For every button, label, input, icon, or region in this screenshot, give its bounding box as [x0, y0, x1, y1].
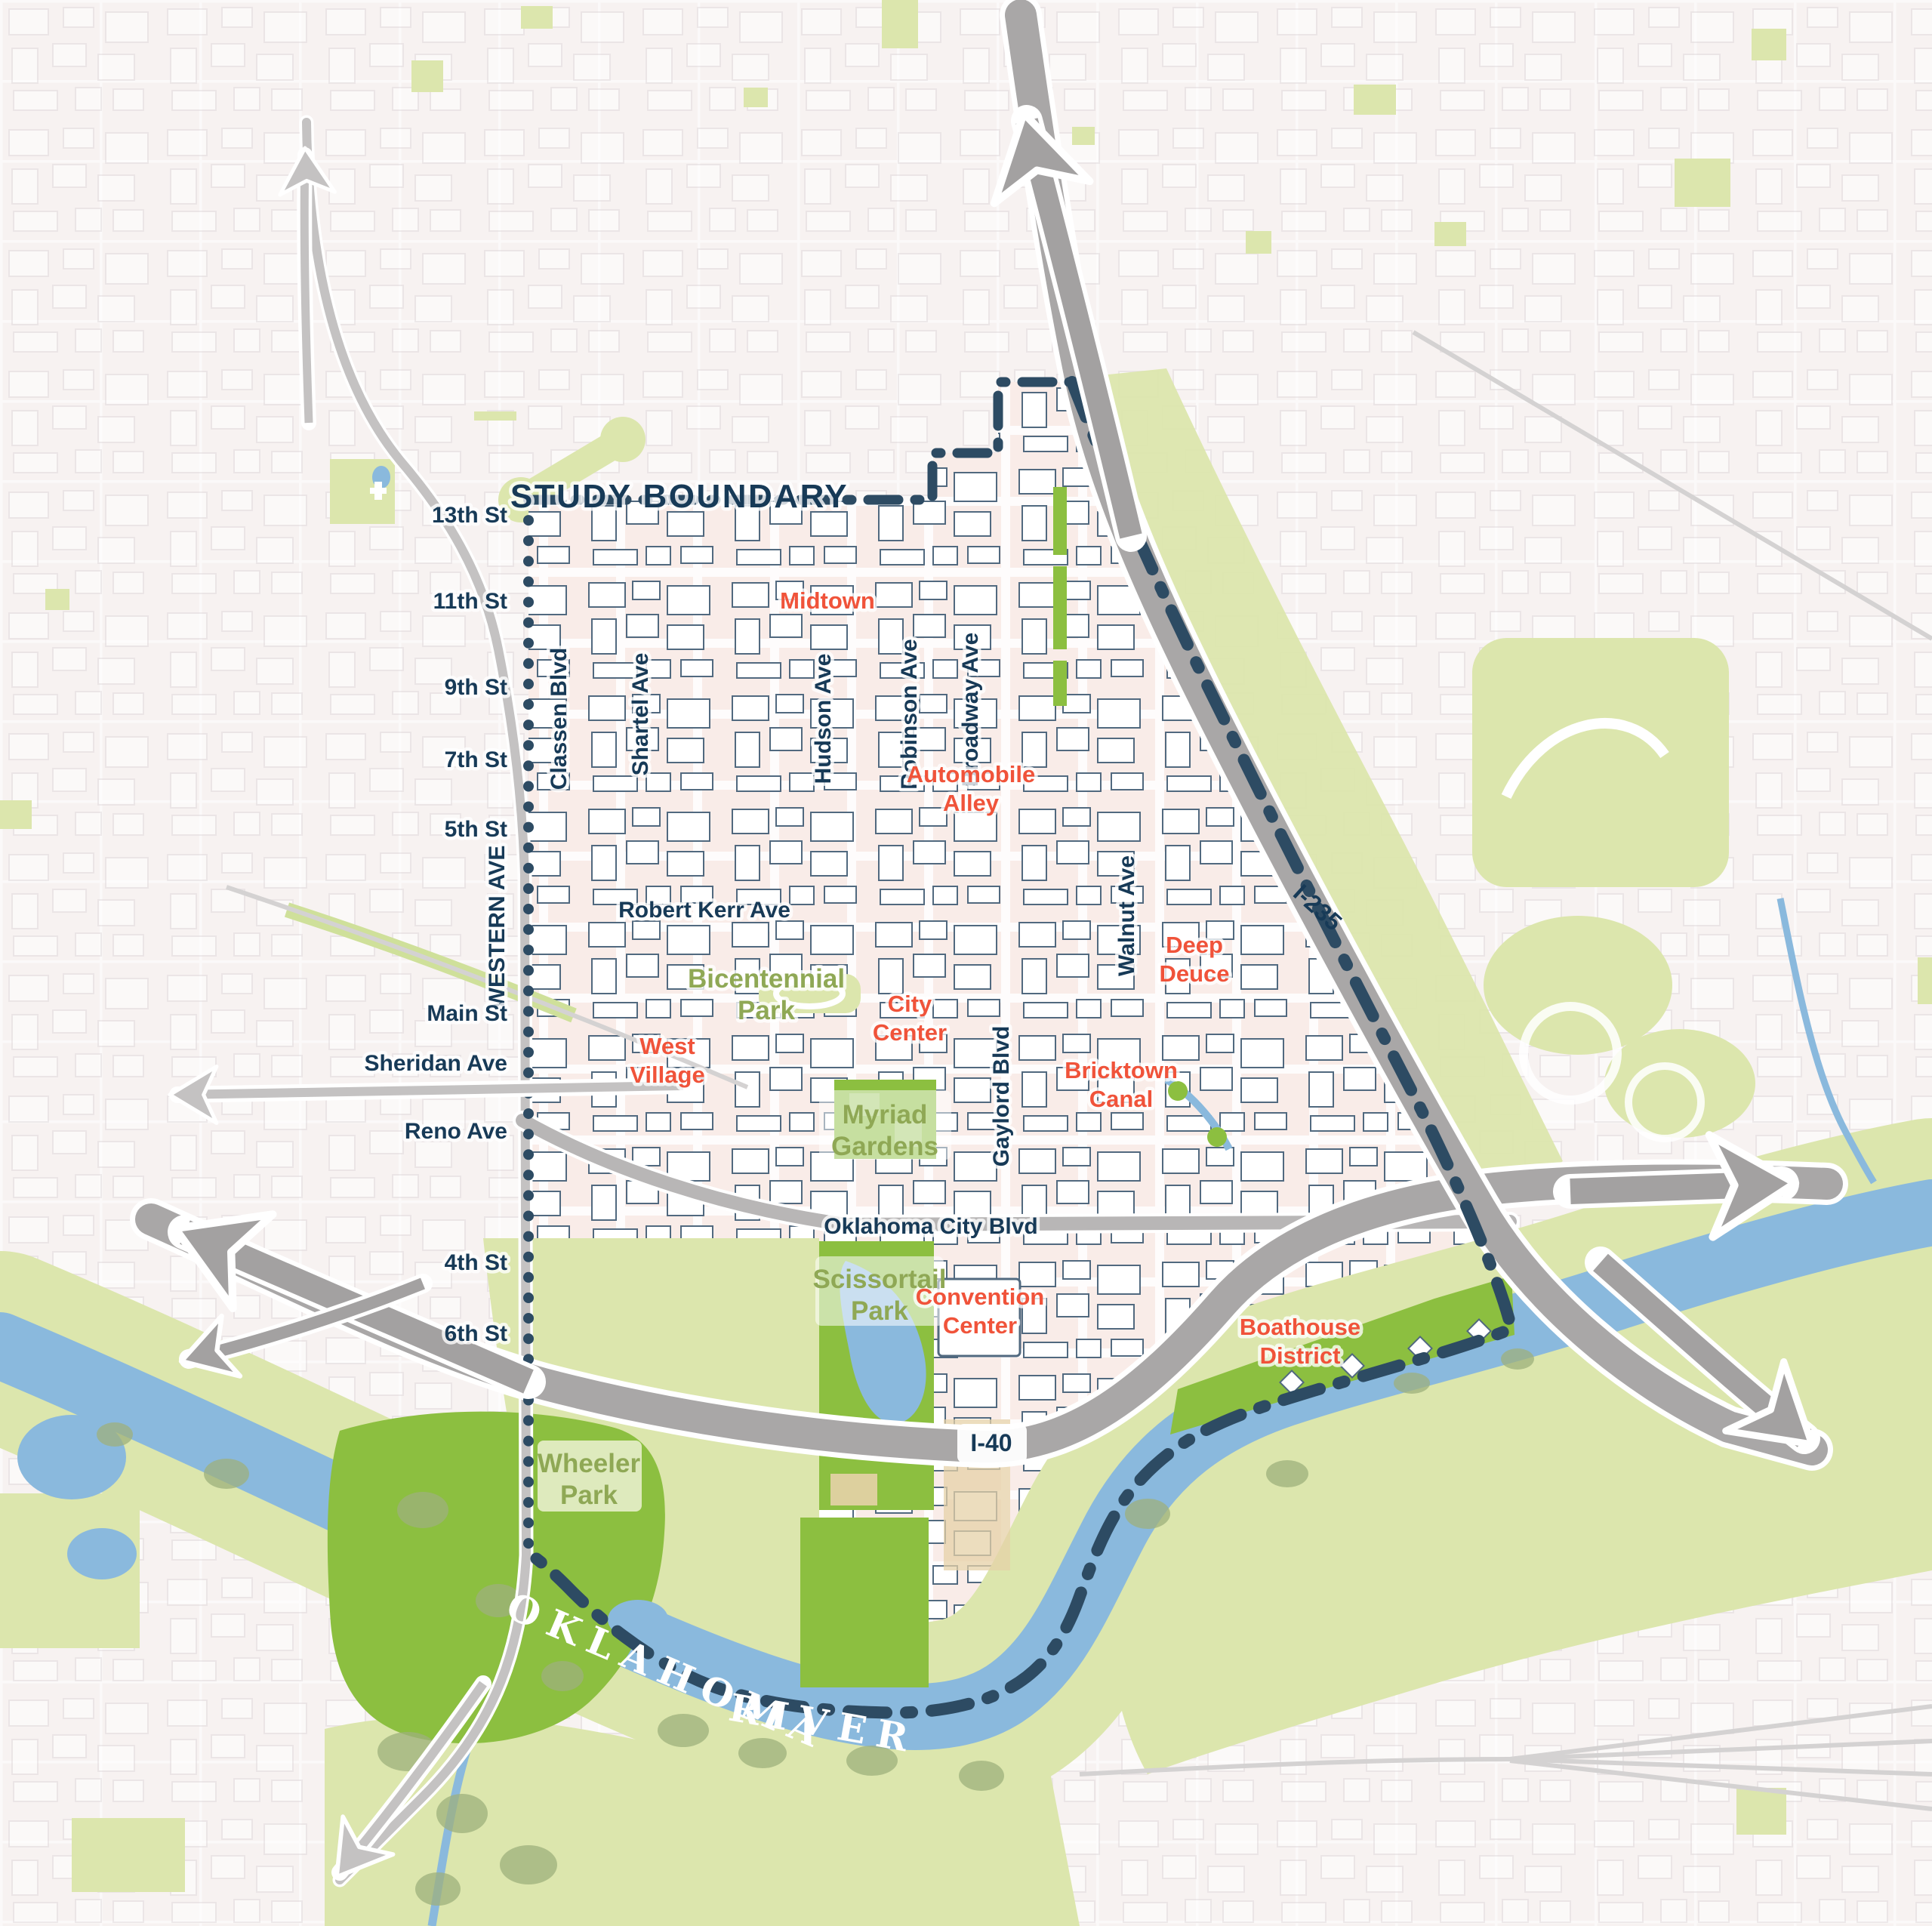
svg-text:Deep: Deep: [1166, 932, 1223, 958]
street-label-7th-st: 7th St: [445, 747, 507, 772]
street-label-6th-st: 6th St: [445, 1321, 507, 1346]
svg-text:Alley: Alley: [943, 790, 1000, 816]
street-label-13th-st: 13th St: [432, 503, 507, 528]
svg-text:Scissortail: Scissortail: [812, 1265, 946, 1294]
study-boundary-title: STUDY BOUNDARY: [510, 478, 849, 515]
street-label-4th-st: 4th St: [445, 1250, 507, 1275]
street-label-reno-ave: Reno Ave: [405, 1119, 507, 1144]
street-label-5th-st: 5th St: [445, 817, 507, 842]
street-label-sheridan-ave: Sheridan Ave: [364, 1051, 507, 1076]
svg-text:Automobile: Automobile: [907, 761, 1036, 787]
svg-text:District: District: [1260, 1342, 1341, 1369]
svg-text:Myriad: Myriad: [843, 1100, 928, 1129]
svg-text:Center: Center: [943, 1312, 1017, 1339]
svg-text:Village: Village: [630, 1062, 704, 1088]
svg-text:West: West: [639, 1033, 695, 1059]
svg-text:Center: Center: [873, 1019, 947, 1046]
svg-text:Bricktown: Bricktown: [1065, 1057, 1178, 1083]
study-boundary-map: STUDY BOUNDARY 13th St 11th St 9th St 7t…: [0, 0, 1932, 1926]
svg-text:Gardens: Gardens: [831, 1132, 938, 1161]
street-label-classen-blvd: Classen Blvd: [547, 648, 572, 790]
street-label-11th-st: 11th St: [433, 589, 507, 614]
street-label-hudson-ave: Hudson Ave: [811, 654, 836, 784]
svg-text:Boathouse: Boathouse: [1240, 1314, 1360, 1340]
street-label-9th-st: 9th St: [445, 675, 507, 700]
street-label-shartel-ave: Shartel Ave: [628, 653, 653, 776]
street-label-walnut-ave: Walnut Ave: [1114, 855, 1139, 976]
svg-text:Wheeler: Wheeler: [538, 1449, 641, 1478]
map-canvas[interactable]: STUDY BOUNDARY 13th St 11th St 9th St 7t…: [0, 0, 1932, 1926]
svg-text:Park: Park: [851, 1296, 908, 1326]
scissortail-park-south: [800, 1518, 929, 1687]
street-label-main-st: Main St: [427, 1001, 507, 1026]
svg-text:Canal: Canal: [1089, 1086, 1153, 1112]
svg-text:Deuce: Deuce: [1159, 960, 1229, 987]
street-label-western-ave: WESTERN AVE: [485, 846, 510, 1009]
svg-text:Park: Park: [738, 996, 795, 1025]
highway-label-i40: I-40: [970, 1429, 1012, 1456]
district-label-midtown: Midtown: [780, 587, 875, 614]
street-label-okc-blvd: Oklahoma City Blvd: [824, 1214, 1037, 1239]
street-label-gaylord-blvd: Gaylord Blvd: [989, 1026, 1014, 1167]
svg-text:Park: Park: [560, 1481, 618, 1510]
svg-text:Bicentennial: Bicentennial: [688, 964, 845, 994]
svg-text:City: City: [888, 991, 932, 1017]
street-label-robert-kerr-ave: Robert Kerr Ave: [618, 898, 790, 923]
west-pond: [67, 1528, 137, 1579]
